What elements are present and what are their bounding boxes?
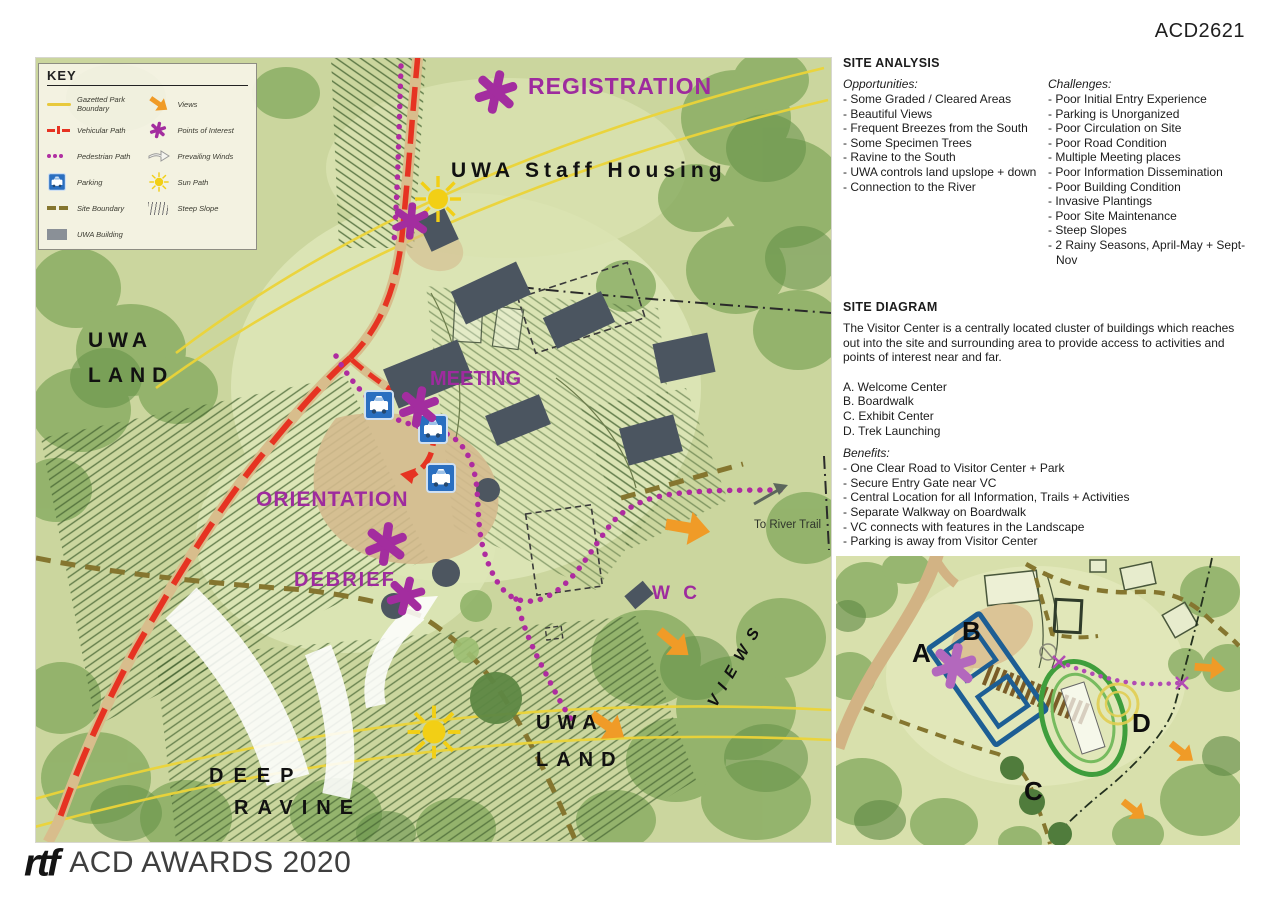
parking-icon <box>47 172 77 192</box>
key-label-points-of-interest: Points of Interest <box>178 126 234 135</box>
location-item: B. Boardwalk <box>843 394 1251 409</box>
site-analysis-title: SITE ANALYSIS <box>843 56 1253 70</box>
locations-list: A. Welcome CenterB. BoardwalkC. Exhibit … <box>843 380 1251 438</box>
key-label-park-boundary: Gazetted Park Boundary <box>77 95 148 113</box>
challenge-item: - Invasive Plantings <box>1048 194 1253 209</box>
label-uwa-staff-housing: UWA Staff Housing <box>451 159 727 182</box>
opportunity-item: - Beautiful Views <box>843 107 1048 122</box>
location-item: A. Welcome Center <box>843 380 1251 395</box>
challenge-item: - Poor Information Dissemination <box>1048 165 1253 180</box>
benefit-item: - Parking is away from Visitor Center <box>843 534 1251 549</box>
label-wc: W C <box>652 583 701 604</box>
points-of-interest-icon <box>148 120 178 140</box>
challenges-list: - Poor Initial Entry Experience- Parking… <box>1048 92 1253 267</box>
challenge-item: - Multiple Meeting places <box>1048 150 1253 165</box>
challenge-item: - Steep Slopes <box>1048 223 1253 238</box>
benefit-item: - VC connects with features in the Lands… <box>843 520 1251 535</box>
label-uwa-land-south-1: UWA <box>536 712 604 734</box>
sun-icon-south <box>408 706 461 759</box>
key-label-uwa-building: UWA Building <box>77 230 123 239</box>
key-title: KEY <box>47 68 248 86</box>
challenges-heading: Challenges: <box>1048 77 1253 91</box>
opportunity-item: - UWA controls land upslope + down <box>843 165 1048 180</box>
vehicular-path-icon <box>47 126 77 134</box>
site-diagram-description: The Visitor Center is a centrally locate… <box>843 321 1251 365</box>
map-key-legend: KEY Gazetted Park Boundary Vehicular Pat… <box>38 63 257 250</box>
views-icon <box>148 95 178 113</box>
key-label-vehicular-path: Vehicular Path <box>77 126 126 135</box>
steep-slope-icon <box>148 202 178 215</box>
label-deep-ravine-1: DEEP <box>209 765 303 787</box>
key-label-steep-slope: Steep Slope <box>178 204 219 213</box>
opportunities-list: - Some Graded / Cleared Areas- Beautiful… <box>843 92 1048 194</box>
label-meeting: MEETING <box>430 368 521 390</box>
benefit-item: - Secure Entry Gate near VC <box>843 476 1251 491</box>
opportunity-item: - Some Specimen Trees <box>843 136 1048 151</box>
footer: rtf ACD AWARDS 2020 <box>24 843 351 883</box>
inset-label-a: A <box>912 638 931 668</box>
benefit-item: - One Clear Road to Visitor Center + Par… <box>843 461 1251 476</box>
label-uwa-land-south-2: LAND <box>536 749 624 771</box>
inset-label-b: B <box>962 616 981 646</box>
label-deep-ravine-2: RAVINE <box>234 797 362 819</box>
site-boundary-icon <box>47 206 77 210</box>
label-registration: REGISTRATION <box>528 73 712 99</box>
challenge-item: - Poor Circulation on Site <box>1048 121 1253 136</box>
opportunity-item: - Some Graded / Cleared Areas <box>843 92 1048 107</box>
park-boundary-icon <box>47 103 77 106</box>
award-title: ACD AWARDS 2020 <box>69 846 351 880</box>
opportunities-heading: Opportunities: <box>843 77 1048 91</box>
presentation-board: REGISTRATION UWA Staff Housing UWA LAND … <box>0 0 1273 900</box>
pedestrian-path-icon <box>47 154 77 158</box>
challenge-item: - Poor Building Condition <box>1048 180 1253 195</box>
rtf-logo: rtf <box>24 844 57 882</box>
label-uwa-land-west-1: UWA <box>88 329 152 352</box>
site-diagram-panel: SITE DIAGRAM The Visitor Center is a cen… <box>843 300 1251 549</box>
location-item: D. Trek Launching <box>843 424 1251 439</box>
inset-label-d: D <box>1132 708 1151 738</box>
label-orientation: ORIENTATION <box>256 488 409 511</box>
challenge-item: - 2 Rainy Seasons, April-May + Sept-Nov <box>1048 238 1253 267</box>
key-label-views: Views <box>178 100 198 109</box>
uwa-building-icon <box>47 229 77 240</box>
site-diagram-inset-map: A B C D <box>836 556 1240 845</box>
site-analysis-panel: SITE ANALYSIS Opportunities: - Some Grad… <box>843 56 1253 267</box>
benefits-list: - One Clear Road to Visitor Center + Par… <box>843 461 1251 549</box>
key-label-pedestrian-path: Pedestrian Path <box>77 152 130 161</box>
challenge-item: - Poor Initial Entry Experience <box>1048 92 1253 107</box>
benefits-heading: Benefits: <box>843 446 1251 460</box>
key-label-prevailing-winds: Prevailing Winds <box>178 152 234 161</box>
opportunity-item: - Frequent Breezes from the South <box>843 121 1048 136</box>
inset-label-c: C <box>1024 776 1043 806</box>
key-label-site-boundary: Site Boundary <box>77 204 124 213</box>
sun-path-icon <box>148 171 178 193</box>
label-to-river-trail: To River Trail <box>754 519 821 531</box>
prevailing-winds-icon <box>148 147 178 165</box>
challenge-item: - Poor Road Condition <box>1048 136 1253 151</box>
opportunity-item: - Ravine to the South <box>843 150 1048 165</box>
location-item: C. Exhibit Center <box>843 409 1251 424</box>
label-debrief: DEBRIEF <box>294 569 396 591</box>
benefit-item: - Central Location for all Information, … <box>843 490 1251 505</box>
label-uwa-land-west-2: LAND <box>88 364 174 387</box>
opportunity-item: - Connection to the River <box>843 180 1048 195</box>
benefit-item: - Separate Walkway on Boardwalk <box>843 505 1251 520</box>
challenge-item: - Poor Site Maintenance <box>1048 209 1253 224</box>
key-label-parking: Parking <box>77 178 102 187</box>
key-label-sun-path: Sun Path <box>178 178 209 187</box>
board-code: ACD2621 <box>1155 20 1245 43</box>
site-diagram-title: SITE DIAGRAM <box>843 300 1251 314</box>
challenge-item: - Parking is Unorganized <box>1048 107 1253 122</box>
